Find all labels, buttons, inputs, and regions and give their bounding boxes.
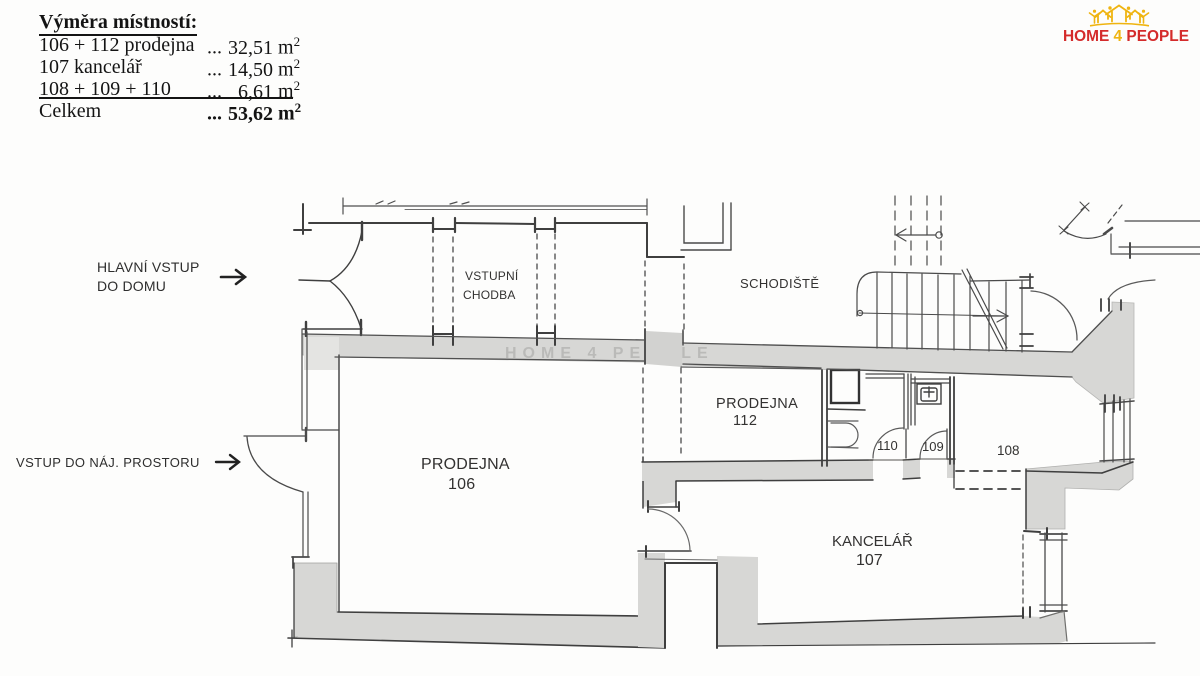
svg-text:PRODEJNA: PRODEJNA: [421, 456, 510, 473]
svg-text:PRODEJNA: PRODEJNA: [716, 396, 798, 412]
svg-text:110: 110: [877, 438, 898, 453]
svg-text:112: 112: [733, 413, 757, 429]
svg-text:KANCELÁŘ: KANCELÁŘ: [832, 533, 913, 550]
svg-text:109: 109: [922, 439, 944, 454]
svg-text:VSTUPNÍ: VSTUPNÍ: [465, 268, 519, 283]
svg-text:DO DOMU: DO DOMU: [97, 278, 166, 294]
svg-text:VSTUP DO NÁJ. PROSTORU: VSTUP DO NÁJ. PROSTORU: [16, 455, 200, 470]
svg-text:108: 108: [997, 443, 1020, 458]
svg-text:CHODBA: CHODBA: [463, 288, 516, 302]
svg-text:HLAVNÍ VSTUP: HLAVNÍ VSTUP: [97, 259, 200, 275]
svg-text:107: 107: [856, 552, 883, 569]
svg-text:106: 106: [448, 476, 475, 493]
svg-text:SCHODIŠTĚ: SCHODIŠTĚ: [740, 276, 819, 291]
